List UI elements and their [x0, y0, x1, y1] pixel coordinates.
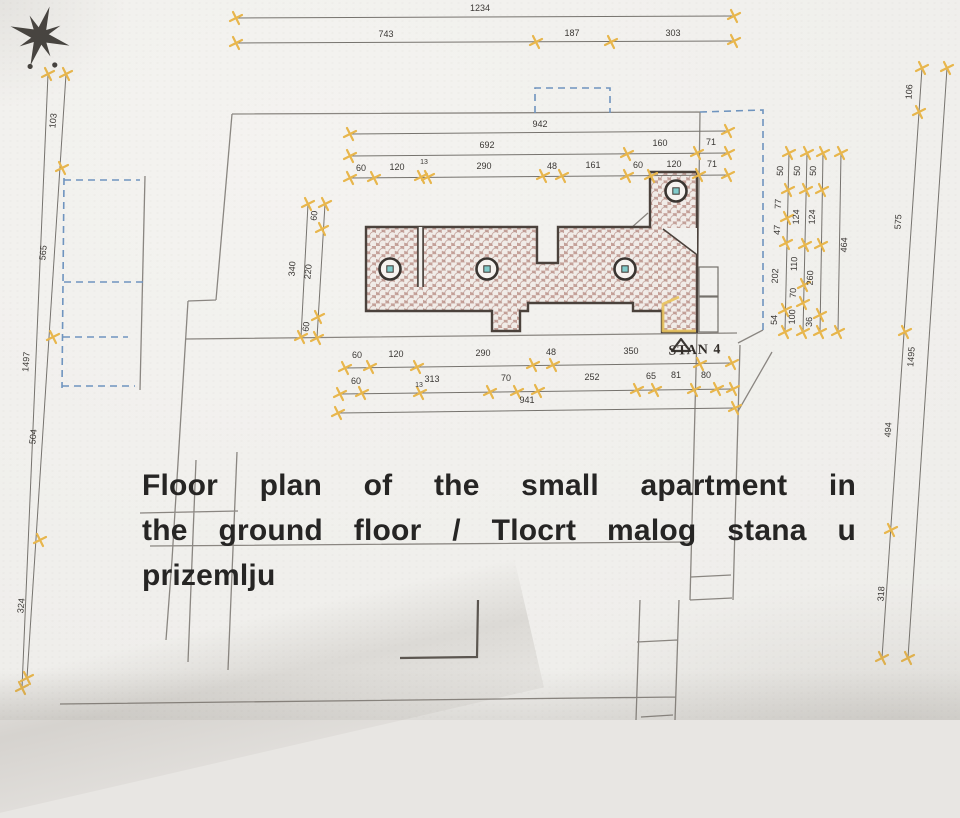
dim-line	[338, 408, 735, 413]
apartment-unit	[366, 172, 697, 351]
dim-line	[22, 74, 48, 688]
dim-label: 1497	[20, 351, 31, 372]
dim-label: 71	[707, 159, 717, 169]
dim-line	[345, 363, 732, 368]
dim-label: 48	[547, 161, 557, 171]
dim-label: 260	[805, 270, 816, 285]
dim-label: 50	[775, 166, 785, 176]
scanned-floor-plan-page: 1234743187303103565149750432410657514954…	[0, 0, 960, 720]
dim-label: 60	[351, 376, 361, 386]
north-compass-icon	[0, 0, 81, 79]
dim-tick	[356, 387, 368, 399]
dim-label: 160	[652, 138, 667, 148]
dim-label: 120	[666, 159, 681, 169]
dim-label: 161	[585, 160, 600, 170]
dim-label: 13	[420, 159, 428, 166]
dim-label: 575	[892, 214, 903, 230]
dim-label: 318	[875, 586, 886, 602]
dim-label: 36	[804, 317, 814, 327]
dim-label: 60	[356, 163, 366, 173]
dim-label: 70	[788, 288, 798, 298]
dim-label: 464	[839, 237, 850, 252]
dim-label: 65	[646, 371, 656, 381]
caption: Floor plan of the small apartment in the…	[142, 463, 856, 598]
column-circle	[380, 259, 401, 280]
dim-label: 494	[882, 422, 893, 438]
dim-line	[236, 41, 734, 43]
floor-plan-drawing: 1234743187303103565149750432410657514954…	[0, 0, 960, 720]
dim-label: 1234	[470, 3, 490, 13]
dim-label: 77	[773, 199, 783, 209]
dim-label: 110	[789, 257, 799, 272]
caption-line: prizemlju	[142, 553, 856, 598]
dim-label: 47	[772, 225, 782, 235]
dim-label: 103	[47, 113, 59, 129]
dim-tick	[316, 223, 328, 235]
dim-label: 290	[476, 161, 491, 171]
dim-label: 70	[501, 373, 511, 383]
dim-label: 692	[479, 140, 494, 150]
dim-tick	[899, 326, 911, 338]
dim-label: 13	[415, 382, 423, 389]
dim-label: 124	[807, 209, 818, 224]
dim-label: 120	[388, 349, 403, 359]
dim-label: 220	[302, 264, 314, 280]
dim-label: 71	[706, 137, 716, 147]
dim-label: 81	[671, 370, 681, 380]
tile-hatch-floor	[366, 172, 697, 332]
dim-label: 106	[903, 84, 914, 100]
dim-label: 743	[378, 29, 393, 39]
dim-label: 124	[791, 209, 802, 224]
dim-label: 202	[770, 268, 781, 283]
dim-label: 290	[475, 348, 490, 358]
dim-label: 100	[787, 309, 798, 324]
dim-label: 60	[352, 350, 362, 360]
dim-label: 941	[519, 395, 534, 405]
retaining-wall-corner	[400, 600, 478, 658]
dim-label: 1495	[905, 346, 916, 367]
dim-label: 340	[286, 261, 297, 277]
caption-line: the ground floor / Tlocrt malog stana u	[142, 508, 856, 553]
dim-label: 565	[37, 245, 49, 261]
dim-label: 252	[584, 372, 599, 382]
dim-label: 60	[301, 321, 312, 332]
column-circle	[615, 259, 636, 280]
apartment-name-label: STAN 4	[656, 342, 734, 360]
dim-line	[350, 131, 728, 134]
dim-label: 504	[27, 429, 39, 445]
dim-line	[236, 16, 734, 18]
dim-tick	[797, 297, 809, 309]
dim-tick	[527, 359, 539, 371]
dim-label: 187	[564, 28, 579, 38]
dim-label: 48	[546, 347, 556, 357]
dim-label: 60	[633, 160, 643, 170]
dim-label: 120	[389, 162, 404, 172]
dim-line	[350, 153, 728, 156]
dim-tick	[364, 361, 376, 373]
column-circle	[477, 259, 498, 280]
dim-label: 350	[623, 346, 638, 356]
closet-box-lower	[699, 297, 718, 332]
dim-label: 80	[701, 370, 711, 380]
dim-line	[882, 68, 922, 658]
dim-label: 313	[424, 374, 439, 384]
dim-label: 942	[532, 119, 547, 129]
dim-label: 54	[769, 315, 779, 325]
column-circle	[666, 181, 687, 202]
dim-label: 60	[309, 210, 320, 221]
dim-tick	[56, 162, 68, 174]
dim-tick	[780, 237, 792, 249]
dim-label: 303	[665, 28, 680, 38]
dim-label: 50	[792, 166, 802, 176]
closet-box-upper	[699, 267, 718, 296]
dim-label: 324	[15, 598, 27, 614]
caption-line: Floor plan of the small apartment in	[142, 463, 856, 508]
dim-label: 50	[808, 166, 818, 176]
